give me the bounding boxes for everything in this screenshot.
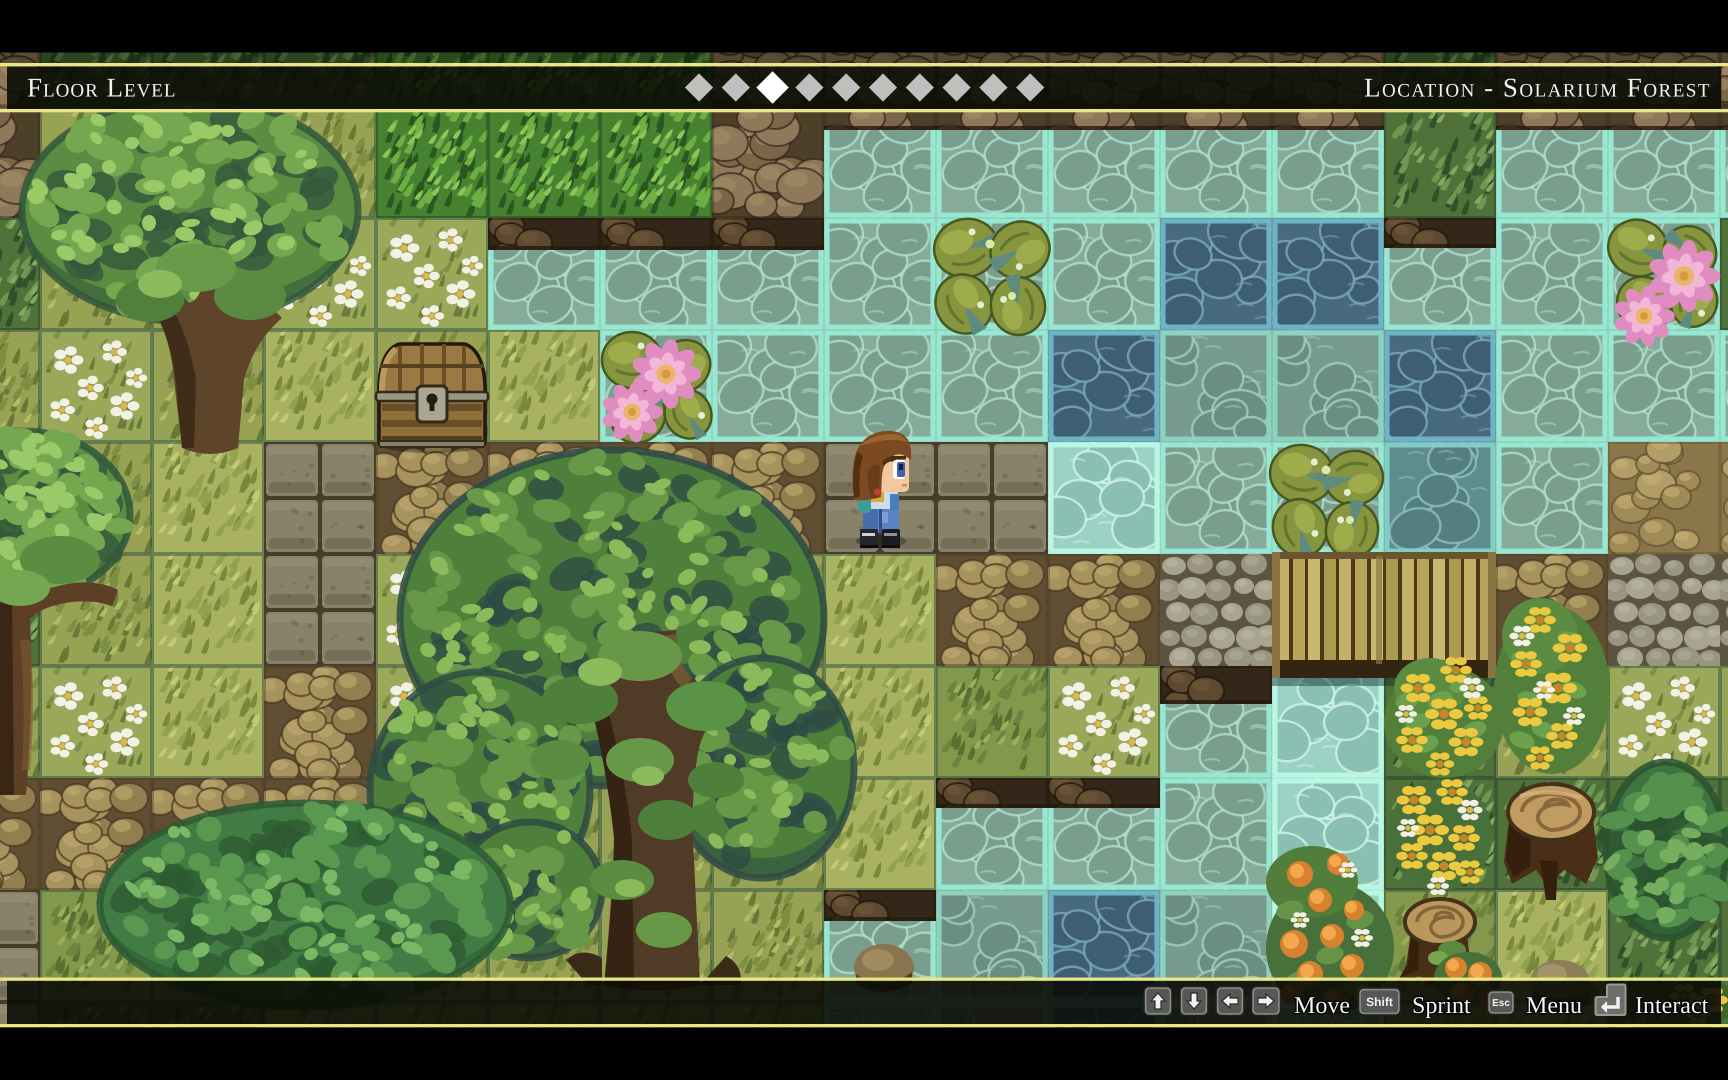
svg-text:Sprint: Sprint (1412, 993, 1471, 1019)
svg-text:Location - Solarium Forest: Location - Solarium Forest (1364, 73, 1711, 103)
svg-text:Menu: Menu (1526, 993, 1582, 1019)
svg-text:Shift: Shift (1366, 995, 1393, 1009)
svg-text:Floor Level: Floor Level (27, 73, 177, 103)
svg-text:Esc: Esc (1492, 998, 1510, 1009)
svg-text:Move: Move (1294, 993, 1350, 1019)
svg-text:Interact: Interact (1635, 993, 1709, 1019)
